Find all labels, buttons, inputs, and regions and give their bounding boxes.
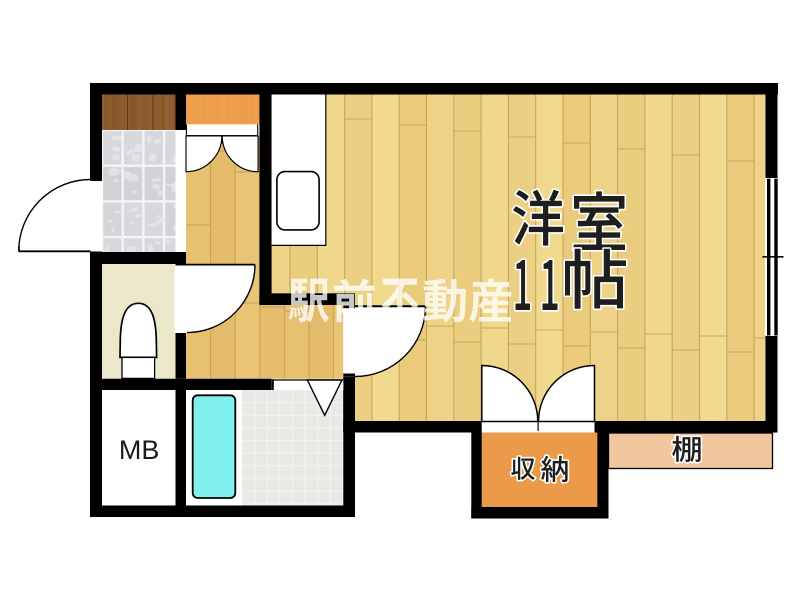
svg-text:MB: MB: [119, 435, 159, 465]
